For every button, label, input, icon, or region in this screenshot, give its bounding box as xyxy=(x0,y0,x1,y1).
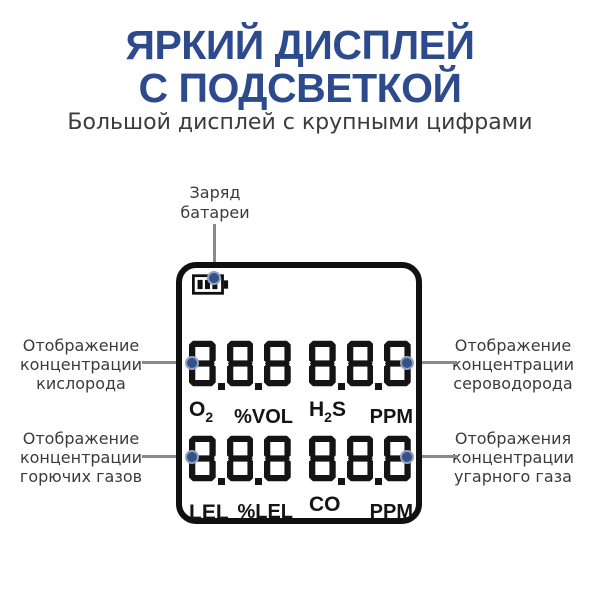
seven-segment-glyph xyxy=(309,336,336,391)
unit-label: PPM xyxy=(370,502,413,523)
seven-segment-glyph xyxy=(264,431,291,486)
seven-segment-glyph xyxy=(309,431,336,486)
readout-o2: O2 %VOL xyxy=(189,336,293,421)
callout-line: концентрации xyxy=(0,355,162,374)
gas-label-co: CO xyxy=(309,494,341,516)
gas-label-h2s: H2S xyxy=(309,399,346,421)
seven-segment-glyph xyxy=(347,336,374,391)
decimal-point xyxy=(255,478,262,485)
lcd-display-panel: O2 %VOL H2S PPM LEL %LEL CO PPM xyxy=(176,262,422,524)
seven-segment-value xyxy=(189,431,293,486)
segment-digit xyxy=(347,336,374,391)
page-title: ЯРКИЙ ДИСПЛЕЙ С ПОДСВЕТКОЙ xyxy=(0,24,600,110)
connector-dot xyxy=(400,356,414,370)
callout-battery-charge: Заряд батареи xyxy=(145,183,285,223)
segment-digit xyxy=(227,336,254,391)
gas-label-lel: LEL xyxy=(189,502,229,524)
callout-oxygen-concentration: Отображение концентрации кислорода xyxy=(0,336,162,393)
seven-segment-glyph xyxy=(227,336,254,391)
decimal-point xyxy=(338,383,345,390)
decimal-point xyxy=(218,383,225,390)
callout-line: горючих газов xyxy=(0,467,162,486)
decimal-point xyxy=(375,383,382,390)
seven-segment-glyph xyxy=(227,431,254,486)
title-line-2: С ПОДСВЕТКОЙ xyxy=(138,65,461,111)
gas-label-o2: O2 xyxy=(189,399,213,421)
title-line-1: ЯРКИЙ ДИСПЛЕЙ xyxy=(125,22,474,68)
callout-line: Отображения xyxy=(432,429,594,448)
segment-digit xyxy=(227,431,254,486)
callout-line: концентрации xyxy=(0,448,162,467)
connector-dot xyxy=(400,450,414,464)
segment-digit xyxy=(264,336,291,391)
decimal-point xyxy=(375,478,382,485)
callout-hydrogen-sulfide-concentration: Отображение концентрации сероводорода xyxy=(432,336,594,393)
callout-line: сероводорода xyxy=(432,374,594,393)
page-subtitle: Большой дисплей с крупными цифрами xyxy=(0,110,600,136)
callout-line: кислорода xyxy=(0,374,162,393)
seven-segment-value xyxy=(309,431,413,486)
seven-segment-glyph xyxy=(347,431,374,486)
unit-label: %LEL xyxy=(237,502,293,523)
callout-line: концентрации xyxy=(432,355,594,374)
callout-line: Отображение xyxy=(0,336,162,355)
segment-digit xyxy=(309,336,336,391)
connector-dot xyxy=(207,271,221,285)
seven-segment-value xyxy=(189,336,293,391)
callout-combustible-gas-concentration: Отображение концентрации горючих газов xyxy=(0,429,162,486)
unit-label: %VOL xyxy=(234,407,293,428)
readout-co: CO PPM xyxy=(309,431,413,516)
connector-dot xyxy=(185,450,199,464)
readout-lel: LEL %LEL xyxy=(189,431,293,516)
decimal-point xyxy=(218,478,225,485)
callout-line: батареи xyxy=(145,203,285,223)
callout-line: Заряд xyxy=(145,183,285,203)
decimal-point xyxy=(255,383,262,390)
unit-label: PPM xyxy=(370,407,413,428)
readout-h2s: H2S PPM xyxy=(309,336,413,421)
infographic-canvas: ЯРКИЙ ДИСПЛЕЙ С ПОДСВЕТКОЙ Большой диспл… xyxy=(0,0,600,600)
connector-dot xyxy=(185,356,199,370)
segment-digit xyxy=(347,431,374,486)
seven-segment-glyph xyxy=(264,336,291,391)
callout-line: Отображение xyxy=(432,336,594,355)
seven-segment-value xyxy=(309,336,413,391)
segment-digit xyxy=(264,431,291,486)
segment-digit xyxy=(309,431,336,486)
callout-line: Отображение xyxy=(0,429,162,448)
decimal-point xyxy=(338,478,345,485)
callout-line: угарного газа xyxy=(432,467,594,486)
